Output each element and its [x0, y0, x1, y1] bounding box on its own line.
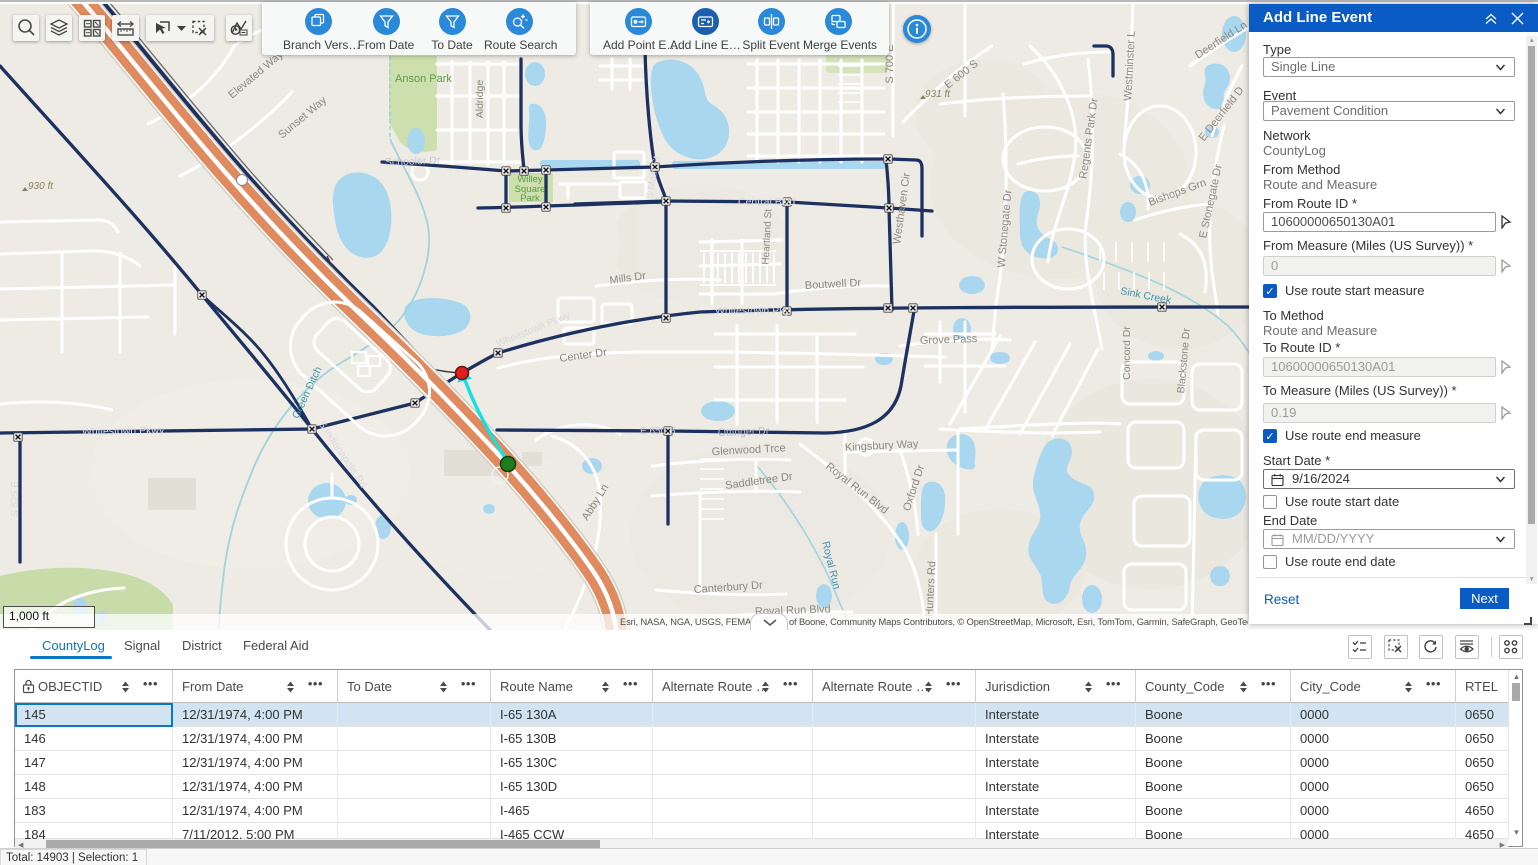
- svg-text:Aldridge: Aldridge: [474, 80, 486, 119]
- svg-text:Anson Park: Anson Park: [395, 73, 452, 85]
- svg-text:Park: Park: [520, 193, 540, 204]
- svg-text:Whitestown Pkwy: Whitestown Pkwy: [82, 425, 165, 438]
- svg-text:Concord Dr: Concord Dr: [1121, 326, 1133, 380]
- svg-text:Grove Pass: Grove Pass: [920, 333, 978, 347]
- svg-text:Whitestown Pky: Whitestown Pky: [715, 305, 790, 317]
- svg-text:S 525 E: S 525 E: [10, 481, 21, 517]
- svg-text:931 ft: 931 ft: [925, 89, 951, 100]
- svg-text:Central Blvd: Central Blvd: [738, 196, 795, 208]
- svg-text:930 ft: 930 ft: [28, 181, 54, 192]
- svg-text:E 650 S: E 650 S: [640, 426, 676, 438]
- svg-text:Ottinger Dr: Ottinger Dr: [718, 425, 770, 439]
- svg-text:Schooler Dr: Schooler Dr: [385, 155, 441, 169]
